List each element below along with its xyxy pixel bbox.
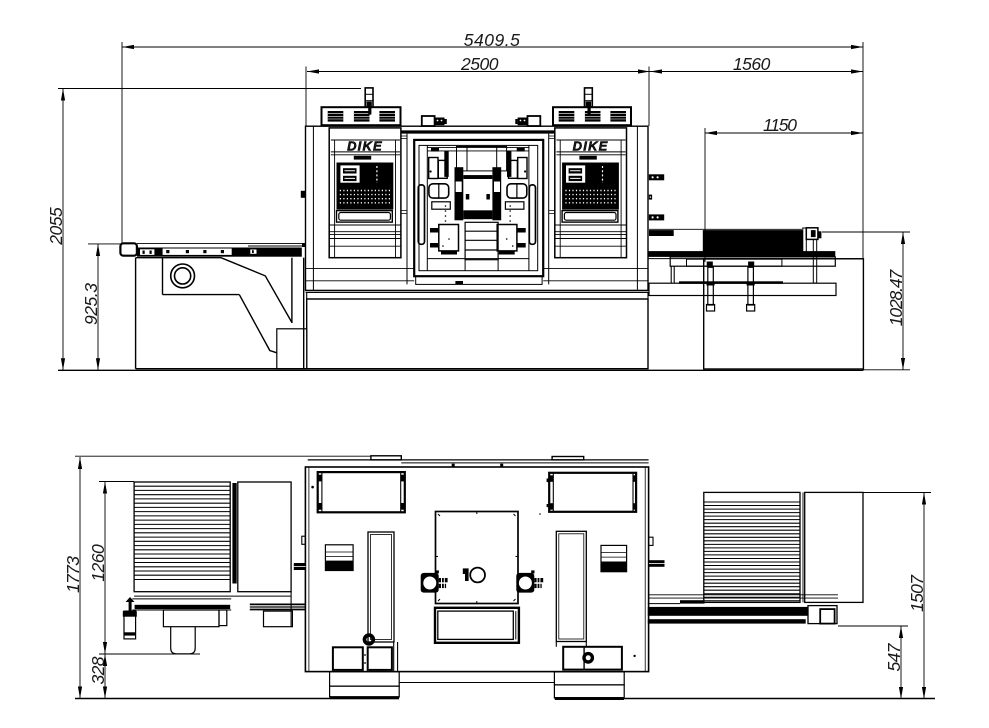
svg-text:2500: 2500 bbox=[460, 54, 499, 74]
svg-text:1773: 1773 bbox=[63, 556, 83, 593]
svg-text:1260: 1260 bbox=[88, 544, 108, 582]
svg-text:5409.5: 5409.5 bbox=[464, 30, 520, 50]
svg-text:1028.47: 1028.47 bbox=[886, 268, 906, 326]
svg-text:547: 547 bbox=[884, 642, 904, 671]
svg-text:1507: 1507 bbox=[907, 574, 927, 612]
svg-text:925.3: 925.3 bbox=[81, 283, 101, 325]
svg-text:1150: 1150 bbox=[763, 115, 797, 135]
svg-text:DIKE: DIKE bbox=[347, 139, 383, 154]
svg-text:328: 328 bbox=[88, 656, 108, 684]
svg-text:2055: 2055 bbox=[46, 207, 66, 246]
svg-text:1560: 1560 bbox=[733, 54, 771, 74]
